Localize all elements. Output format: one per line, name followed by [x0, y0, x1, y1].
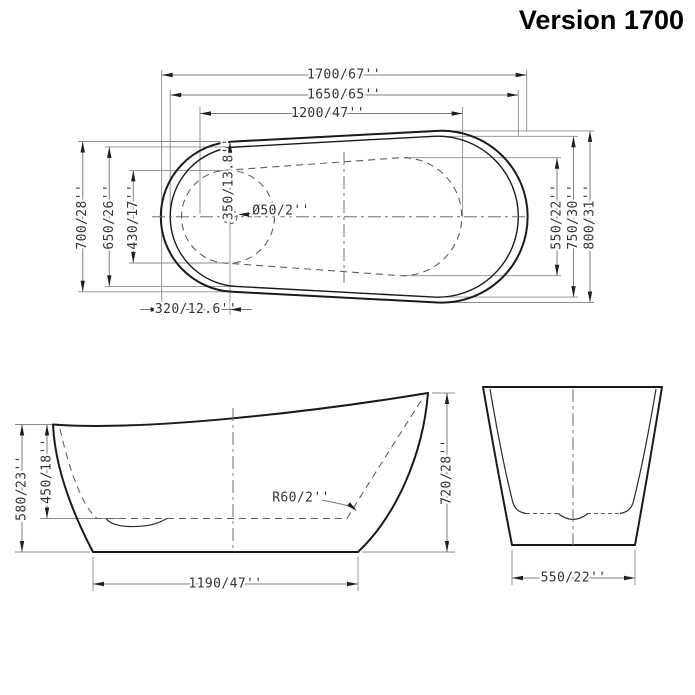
dim-corner-radius: R60/2'' [272, 491, 357, 512]
dim-drain-to-edge: 350/13.8'' [222, 138, 237, 220]
technical-drawing-page: Version 1700 [0, 0, 695, 695]
dim-length-rim: 1650/65'' [170, 88, 518, 103]
dim-base-width: 550/22'' [512, 571, 635, 586]
dim-length-basin: 1200/47'' [200, 106, 463, 121]
dim-label-width-left-rim: 650/26'' [102, 184, 117, 250]
side-view-extension-lines [15, 393, 455, 591]
dim-width-right-overall: 800/31'' [583, 131, 598, 303]
dim-label-height-left: 580/23'' [15, 455, 30, 521]
dim-drain-offset: 320/12.6'' [140, 302, 252, 317]
dim-base-length: 1190/47'' [93, 577, 358, 592]
dim-label-width-right-basin: 550/22'' [550, 184, 565, 250]
end-view: 550/22'' [483, 387, 662, 586]
dim-width-left-rim: 650/26'' [102, 147, 117, 287]
dim-label-corner-radius: R60/2'' [272, 491, 330, 506]
dim-width-left-overall: 700/28'' [75, 142, 90, 292]
side-view: 580/23'' 450/18'' 720/28'' 1190/47'' R6 [15, 393, 456, 592]
tub-side-profile [53, 393, 428, 552]
dim-label-base-width: 550/22'' [541, 571, 607, 586]
dim-drain-diameter: Ø50/2'' [238, 204, 310, 219]
dim-label-width-left-basin: 430/17'' [126, 184, 141, 250]
dim-label-length-basin: 1200/47'' [291, 106, 365, 121]
dim-label-depth-inner: 450/18'' [40, 438, 55, 504]
dim-label-base-length: 1190/47'' [188, 577, 262, 592]
end-inner-left [490, 389, 526, 514]
dim-label-length-rim: 1650/65'' [307, 88, 381, 103]
dim-label-width-right-overall: 800/31'' [583, 184, 598, 250]
dim-label-height-right: 720/28'' [440, 439, 455, 505]
side-drain-recess [106, 519, 167, 527]
dim-label-drain-offset: 320/12.6'' [155, 302, 237, 317]
dim-label-drain-diameter: Ø50/2'' [252, 204, 310, 219]
dim-label-width-left-overall: 700/28'' [75, 184, 90, 250]
dim-label-width-right-rim: 750/30'' [566, 184, 581, 250]
side-inner-surface [60, 396, 424, 519]
bathtub-drawing: Version 1700 [0, 0, 695, 695]
dim-height-right: 720/28'' [440, 393, 455, 552]
dim-length-overall: 1700/67'' [162, 68, 527, 83]
dim-width-right-rim: 750/30'' [566, 136, 581, 297]
dim-label-drain-to-edge: 350/13.8'' [222, 138, 237, 220]
dim-depth-inner: 450/18'' [40, 425, 55, 519]
dim-width-left-basin: 430/17'' [126, 170, 141, 263]
page-title: Version 1700 [519, 5, 684, 35]
dim-height-left: 580/23'' [15, 425, 30, 553]
dim-width-right-basin: 550/22'' [550, 158, 565, 276]
top-view: 1700/67'' 1650/65'' 1200/47'' 700/28'' [75, 68, 597, 318]
dim-label-length-overall: 1700/67'' [307, 68, 381, 83]
